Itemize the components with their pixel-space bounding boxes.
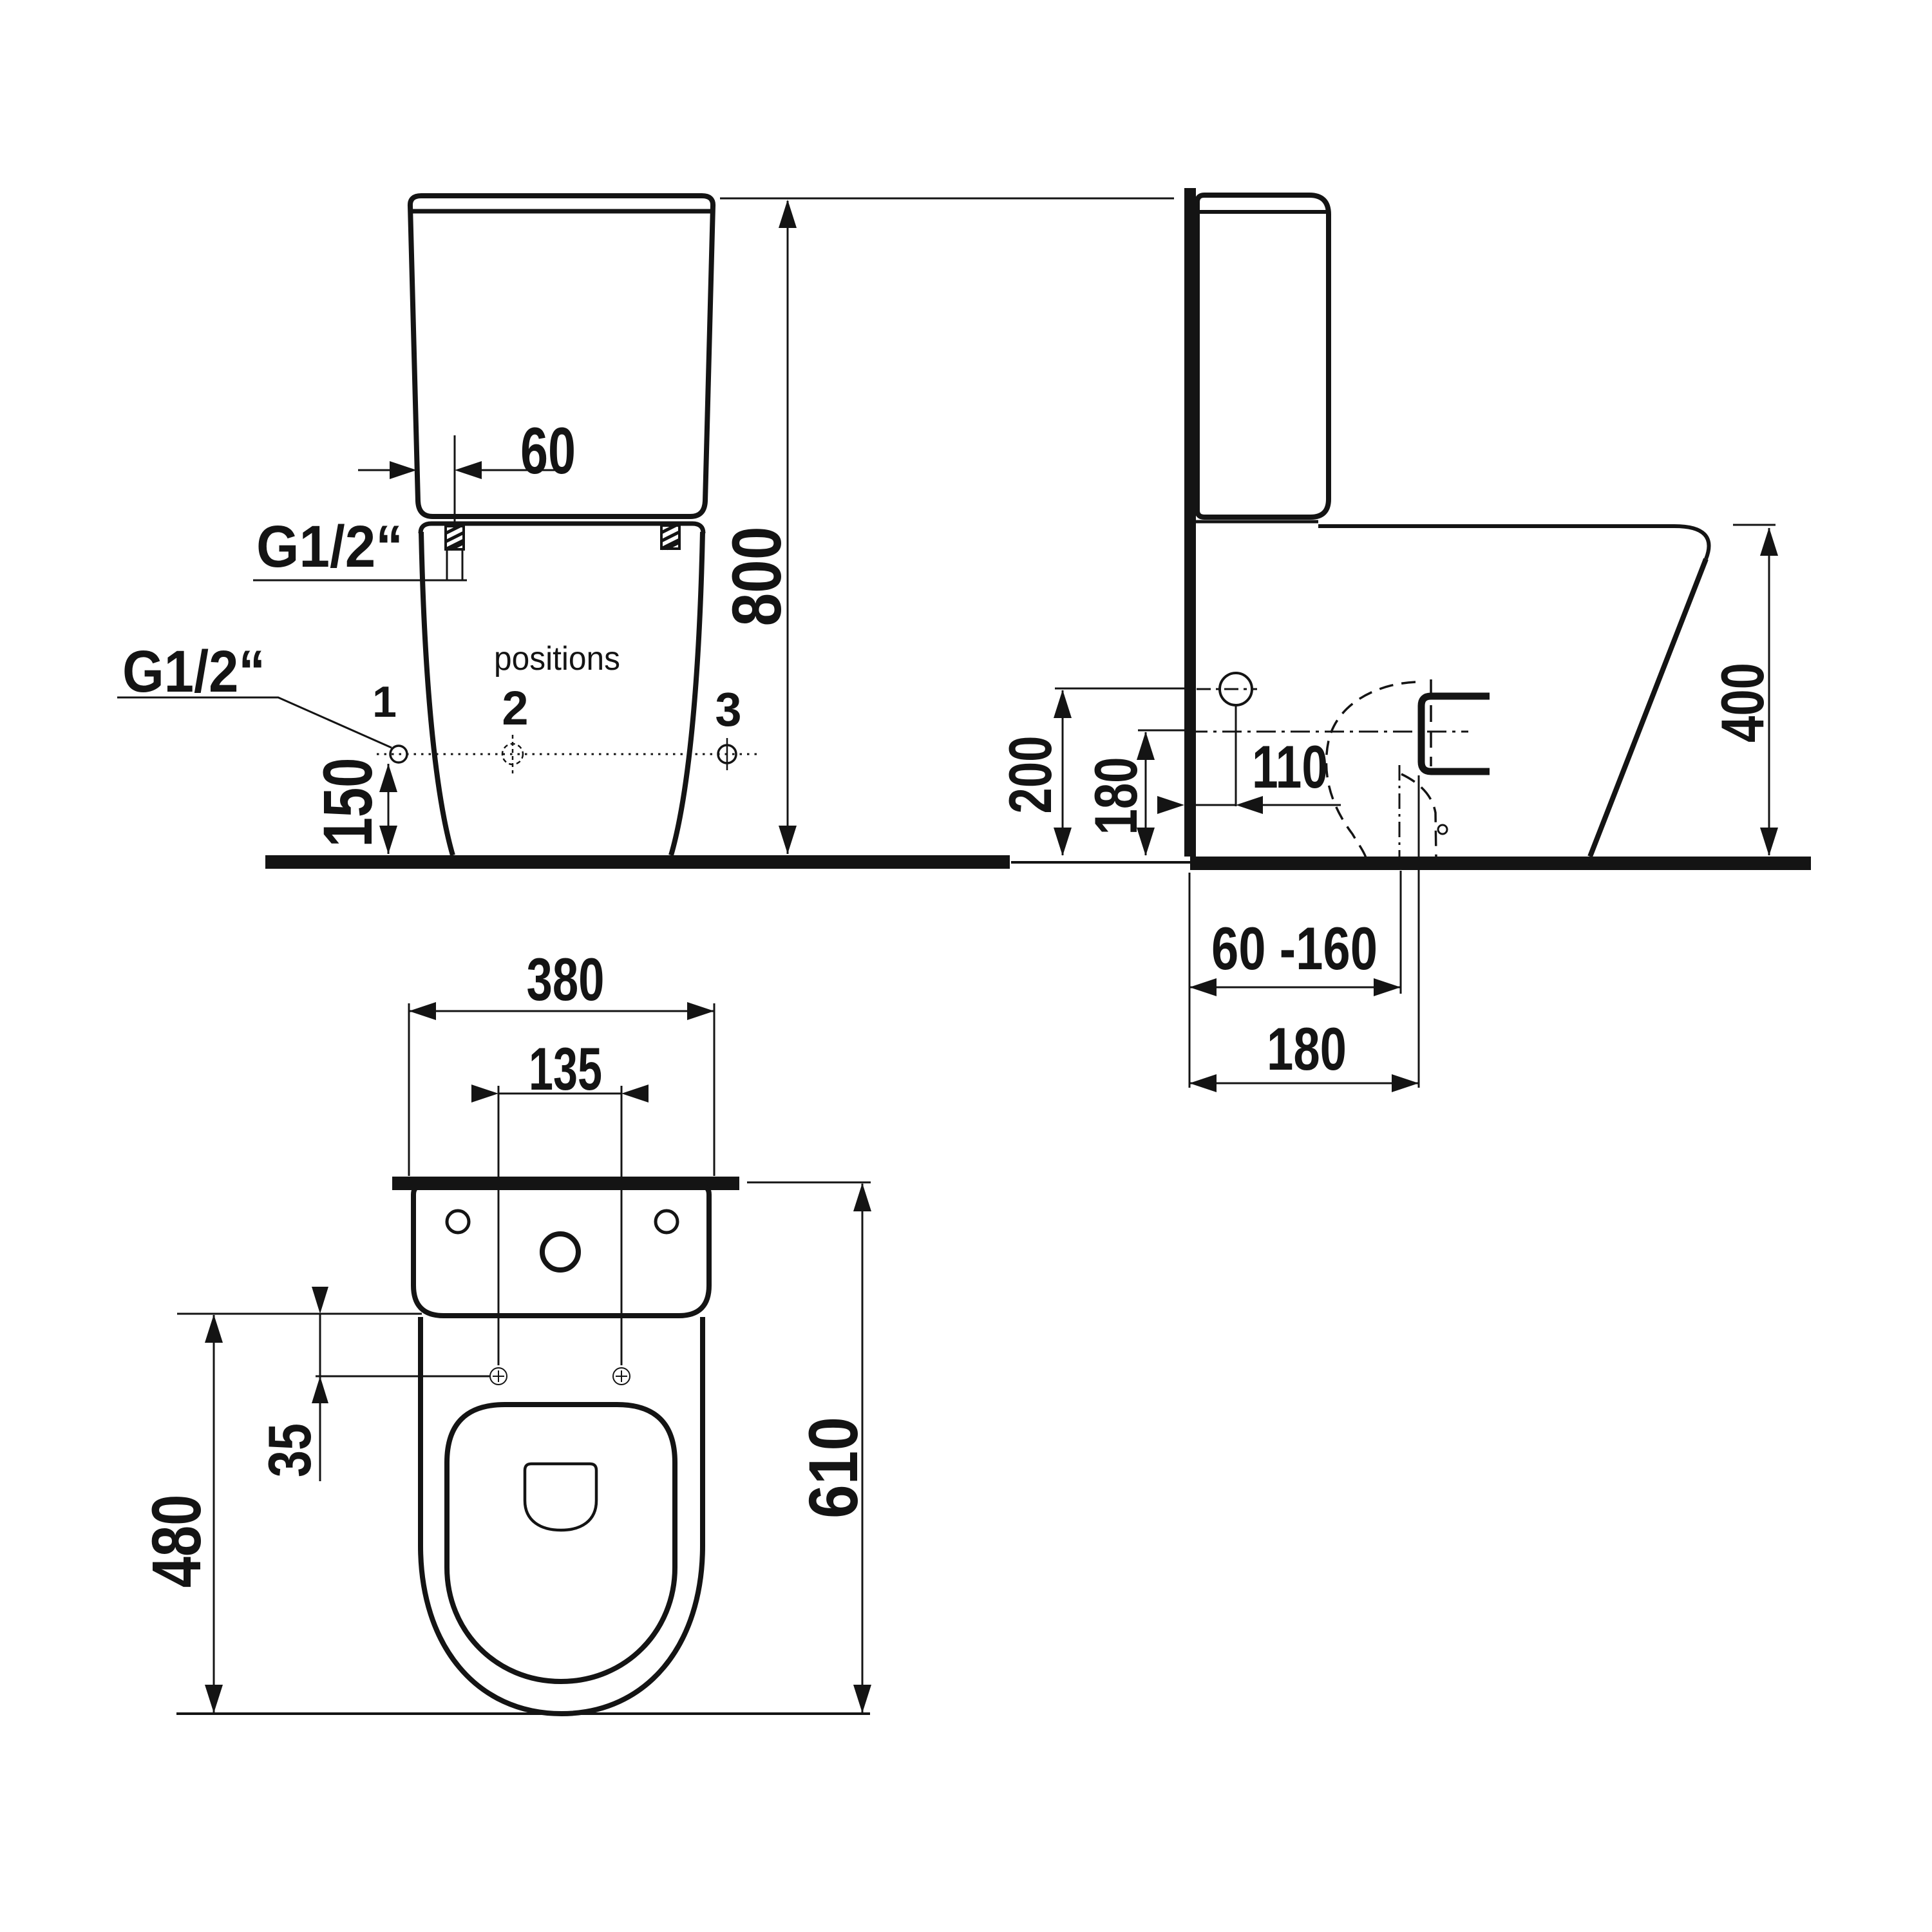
svg-text:3: 3 [715,683,741,736]
svg-text:480: 480 [137,1495,215,1588]
svg-text:135: 135 [529,1035,602,1103]
svg-text:200: 200 [996,736,1064,814]
svg-text:35: 35 [256,1423,323,1477]
svg-text:150: 150 [308,758,386,848]
svg-text:G1/2“: G1/2“ [122,639,265,705]
svg-text:60 -160: 60 -160 [1211,914,1378,982]
svg-text:610: 610 [794,1417,872,1519]
svg-text:110: 110 [1252,733,1328,800]
svg-text:1: 1 [372,677,397,726]
svg-text:180: 180 [1267,1015,1347,1083]
svg-text:400: 400 [1709,663,1776,743]
svg-text:180: 180 [1082,757,1150,835]
svg-text:G1/2“: G1/2“ [256,514,403,580]
svg-text:positions: positions [494,640,620,677]
svg-text:800: 800 [717,527,795,627]
svg-text:380: 380 [527,945,605,1013]
svg-text:60: 60 [520,414,576,488]
svg-text:2: 2 [502,681,528,735]
